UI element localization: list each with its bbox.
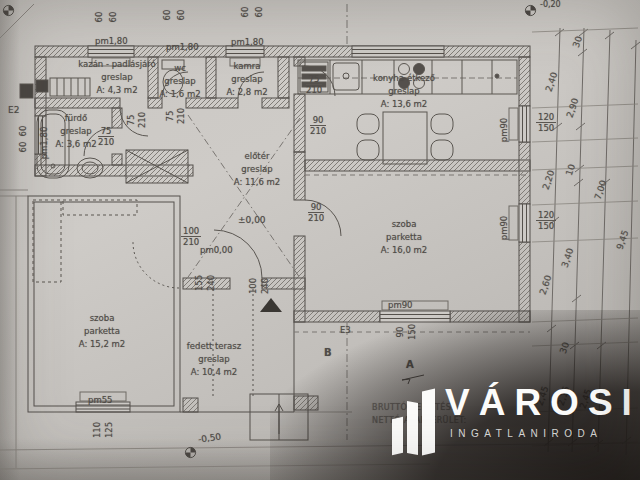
dim-parapet: pm1,80 [231,38,264,47]
level-pm0: pm0,00 [200,246,233,255]
room-label-szoba-16: szobaparkettaA: 16,0 m2 [381,218,428,258]
dim-szoba2-window: 125 [105,422,114,438]
dim-parapet: pm90 [500,118,509,143]
existing-walls [28,196,308,440]
dim-entry-side: 100 [249,278,258,294]
dim-parapet: pm1,80 [166,43,199,52]
dim-window-60: 60 [19,142,28,153]
dim-window-60: 60 [163,10,172,21]
dim-corridor: 210 [138,112,147,128]
dim-window-right-lower: 120150 [536,210,556,231]
dim-szoba-window: 90 [396,327,405,338]
dim-corridor: 75 [166,111,175,122]
room-label-kamra: kamragreslapA: 2,8 m2 [226,60,267,100]
room-label-kazan: kazán - padlásjárógreslapA: 4,3 m2 [78,58,156,98]
dim-window-60: 60 [19,126,28,137]
marker-a: A [406,360,414,370]
level-minus-020: -0,20 [540,1,561,9]
dim-parapet: pm1,80 [40,127,49,160]
room-label-wc: wcgreslapA: 1,6 m2 [159,62,200,102]
dim-parapet: pm1,80 [95,37,128,46]
dim-window-right-upper: 120150 [536,112,556,133]
marker-b: B [324,348,332,358]
dim-window-60: 60 [177,10,186,21]
dim-szoba-window: 150 [408,324,417,340]
dim-window-60: 60 [95,12,104,23]
room-label-terasz: fedett teraszgreslapA: 10,4 m2 [187,340,241,380]
footer-brutto: BRUTTÓ BEÉPÍTÉS: [372,404,454,412]
dim-parapet: pm90 [388,301,413,310]
dim-konyha-door: 75210 [306,74,322,95]
level-zero: ±0,00 [238,216,266,225]
dim-konyha-opening: 90210 [310,115,326,136]
marker-e2: E2 [8,106,19,115]
dim-entry-side: 240 [261,278,270,294]
stair-block [126,150,188,183]
marker-e3: E3 [340,326,351,335]
footer-netto: NETTÓ ALAPTERÜLET: [372,417,467,425]
dim-szoba2-window: 110 [93,422,102,438]
dim-entry-door: 100210 [181,226,201,247]
floorplan-photo: kazán - padlásjárógreslapA: 4,3 m2 wcgre… [0,0,640,480]
dim-parapet: pm55 [88,396,113,405]
dim-window-60: 60 [109,12,118,23]
dim-parapet: pm90 [500,216,509,241]
room-label-furdo: fürdőgreslapA: 3,6 m2 [55,112,96,152]
dim-window-60: 60 [241,7,250,18]
dim-szoba-door: 90210 [308,202,324,223]
dim-entry-side: 155 [195,275,204,291]
walls [35,46,530,412]
room-label-szoba-15: szobaparkettaA: 15,2 m2 [79,312,126,352]
dim-furdo-door: 75210 [98,126,114,147]
room-label-eloter: előtérgreslapA: 11,6 m2 [234,150,281,190]
dim-entry-side: 240 [207,275,216,291]
dim-corridor: 75 [127,115,136,126]
dim-corridor: 210 [177,108,186,124]
room-label-konyha: konyha-étkezőgreslapA: 13,6 m2 [373,72,435,112]
dim-window-60: 60 [255,7,264,18]
